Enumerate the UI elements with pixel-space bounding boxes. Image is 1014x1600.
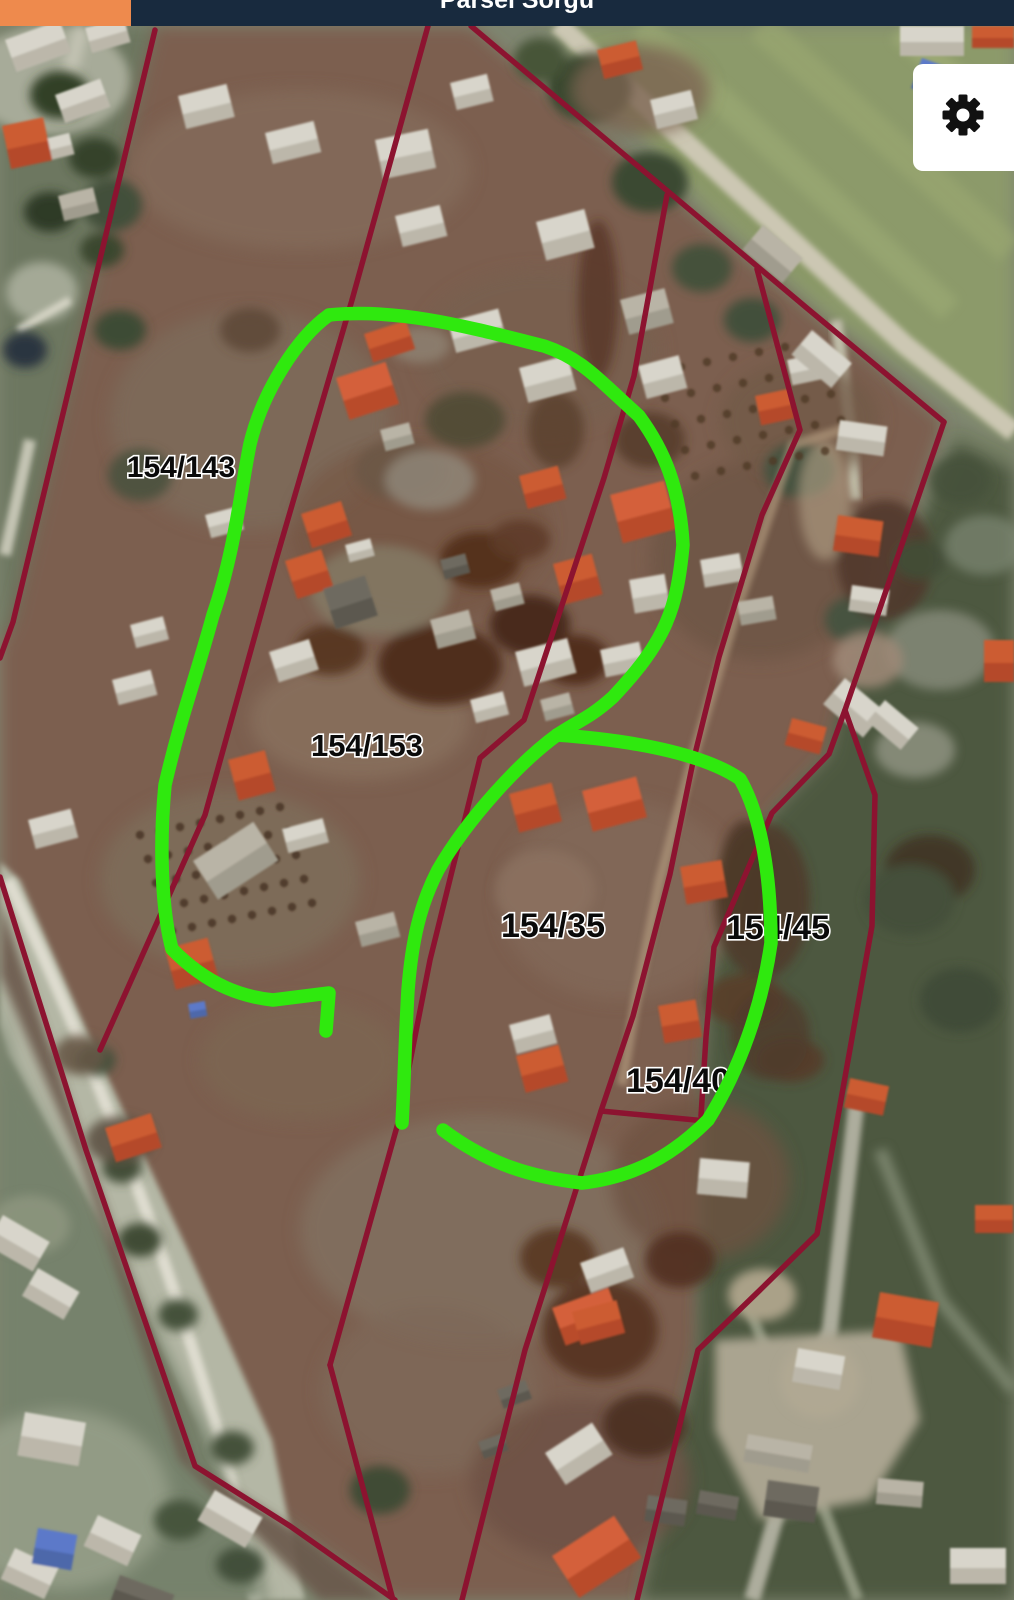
svg-text:Parsel Sorgu: Parsel Sorgu [440, 0, 594, 14]
svg-text:154/45: 154/45 [726, 909, 830, 947]
svg-text:154/35: 154/35 [501, 907, 605, 945]
svg-text:154/153: 154/153 [311, 728, 423, 763]
svg-text:154/143: 154/143 [127, 451, 235, 484]
svg-text:154/40: 154/40 [626, 1062, 730, 1100]
